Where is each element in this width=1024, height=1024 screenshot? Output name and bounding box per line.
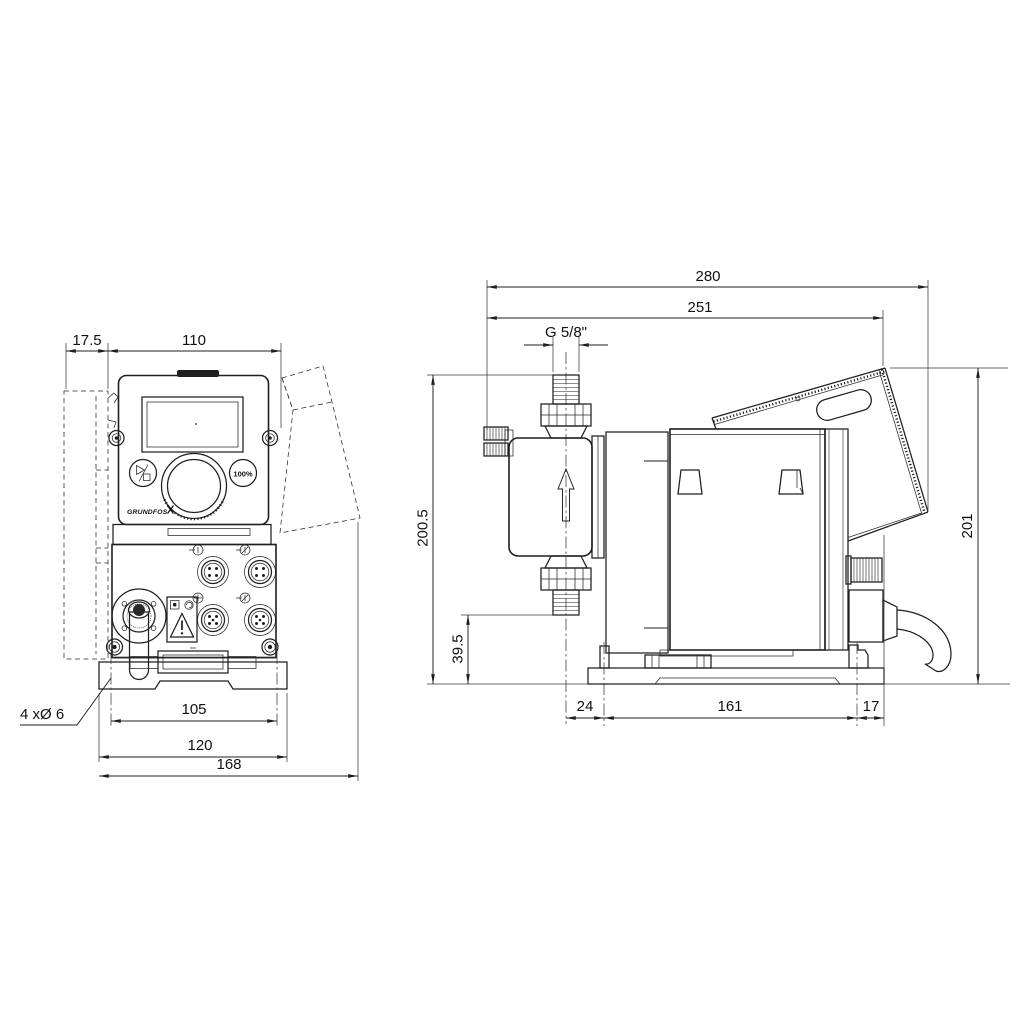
wall-plate: [64, 391, 118, 659]
corner-screw-left: [107, 639, 123, 655]
dim-plate-width: 120: [187, 737, 212, 754]
warning-label: [167, 597, 197, 642]
hinge-screw-right: [263, 431, 278, 446]
connector-socket[interactable]: [236, 545, 276, 588]
dim-hole-spacing-side: 161: [717, 698, 742, 715]
connector-icon-glyph: [236, 547, 248, 553]
mounting-plate-front: [99, 648, 287, 689]
threaded-stub: [851, 558, 882, 582]
rear-connections: [846, 556, 951, 671]
start-stop-button[interactable]: [130, 460, 157, 487]
motor-housing: [670, 429, 825, 650]
rear-cap: [825, 429, 848, 650]
dim-hole-spacing: 105: [181, 701, 206, 718]
pump-body: [606, 429, 848, 653]
mains-cable: [897, 610, 951, 671]
hood-clip: [779, 470, 803, 494]
dim-height-left: 200.5: [415, 509, 432, 547]
hood-edge-hatch: [882, 370, 925, 513]
connector-icon-glyph: [194, 595, 202, 602]
hood-clip: [678, 470, 702, 494]
hole-callout: 4 xØ 6: [20, 678, 111, 725]
power-cable: [130, 612, 149, 680]
lcd-display: [142, 397, 243, 452]
stop-icon: [144, 474, 151, 481]
connector-socket[interactable]: [189, 545, 229, 588]
pump-dimensional-drawing: 100% GRUNDFOS: [0, 0, 1024, 1024]
dim-foot-offset: 24: [577, 698, 594, 715]
control-panel: 100% GRUNDFOS: [109, 370, 278, 525]
grundfos-logo: GRUNDFOS: [127, 506, 174, 517]
brand-text: GRUNDFOS: [127, 509, 168, 516]
hundred-percent-label: 100%: [233, 469, 253, 478]
dim-rear-clearance: 17: [863, 698, 880, 715]
front-view: 100% GRUNDFOS: [20, 332, 360, 781]
adapter-section: [606, 432, 668, 653]
hinge-screw-left: [109, 431, 124, 446]
dim-length-to-hood: 251: [687, 299, 712, 316]
dim-height-right: 201: [959, 513, 976, 538]
dim-thread: G 5/8": [545, 324, 587, 341]
hundred-percent-button[interactable]: 100%: [230, 460, 257, 487]
hood-edge-hatch: [714, 372, 885, 422]
connector-icon-glyph: [236, 595, 248, 601]
dosing-head: [484, 375, 604, 615]
panel-flange: [113, 525, 271, 545]
connection-body: [107, 545, 279, 680]
dim-panel-width: 110: [182, 332, 206, 349]
hood-projection-dashed: [280, 366, 360, 533]
logo-mark: [168, 506, 174, 514]
hood-hole: [796, 397, 800, 401]
connector-socket[interactable]: [236, 593, 276, 636]
connector-socket[interactable]: [193, 593, 229, 636]
dim-overall-depth: 168: [216, 756, 241, 773]
dim-wall-offset: 17.5: [72, 332, 101, 349]
dim-overall-length: 280: [695, 268, 720, 285]
dim-hole-note: 4 xØ 6: [20, 706, 64, 723]
side-view: 280 251 G 5/8" 200.5 39.5 201: [415, 268, 1011, 726]
drawing-canvas: 100% GRUNDFOS: [0, 0, 1024, 1024]
cable-gland-block: [849, 590, 883, 642]
dim-valve-height: 39.5: [450, 634, 467, 663]
